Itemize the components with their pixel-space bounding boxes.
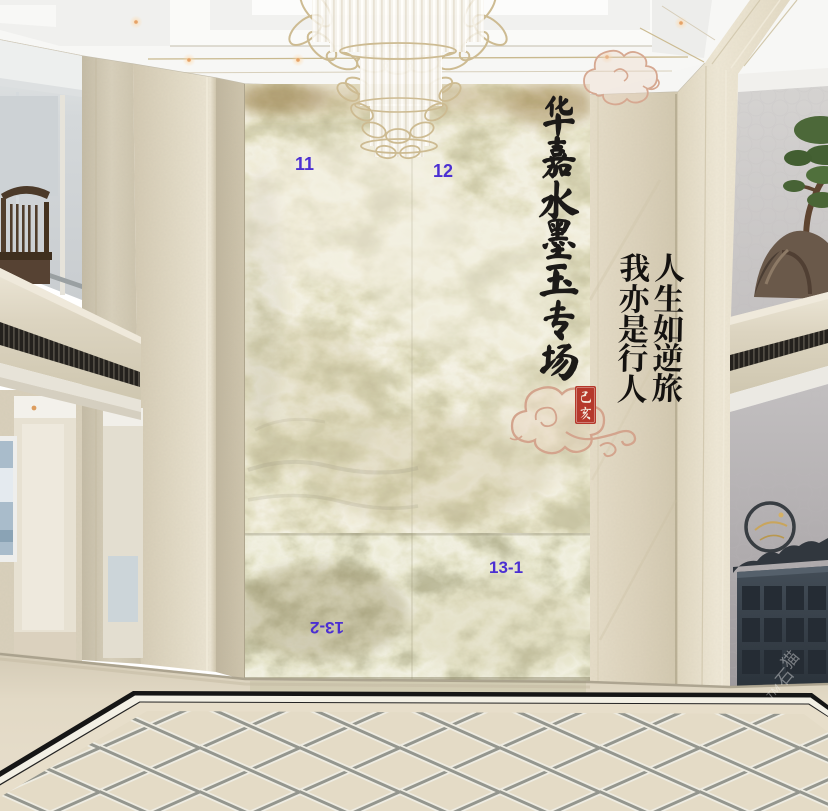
svg-text:13-2: 13-2 [310, 618, 344, 637]
svg-text:13-1: 13-1 [489, 558, 523, 577]
svg-text:12: 12 [433, 161, 453, 181]
svg-text:11: 11 [295, 154, 314, 174]
